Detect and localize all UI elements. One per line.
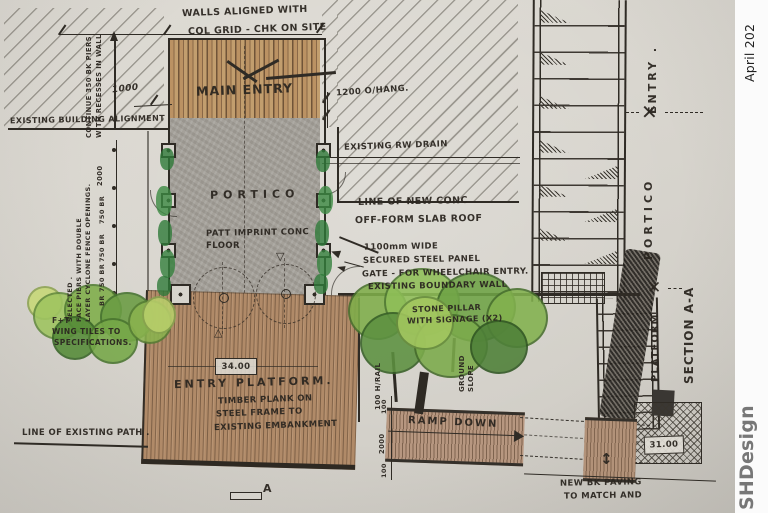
leader-arrow-head [110,31,118,41]
section-label-section-aa: SECTION A-A [682,286,696,384]
section-roof-ladder [531,0,627,302]
ground-slope-line1: GROUND [458,340,467,392]
climber-plant [314,274,328,294]
column-circle-center [281,289,291,299]
ramp-centerline [388,431,516,437]
date-stamp: April 202 [742,2,757,82]
hatch-boundary-vline [337,127,339,203]
triangle-up-icon: △ [214,326,223,339]
climber-plant [316,150,330,172]
column-centerline [284,258,285,328]
section-hatch-triangle [584,250,618,264]
climber-plant [318,186,333,214]
climber-plant [160,148,174,170]
section-cut-dash [668,288,682,289]
updown-arrow-icon: ↕ [600,450,613,468]
section-hatch-triangle [540,10,570,23]
section-hatch-triangle [539,184,569,197]
sketch-sheet: ✕ ✕ ▽ △ ↕ A 34.00 31.00 WALLS ALIGNED WI… [0,0,768,513]
climber-plant [156,186,172,216]
gate-note-line1: 1100mm WIDE [364,241,438,252]
ground-slope-label: GROUND SLOPE [458,340,476,392]
selected-piers-line1: SELECTED . [66,136,75,322]
section-cut-dash [626,112,639,113]
rw-drain-line-2 [322,163,520,164]
section-hatch-triangle [585,208,619,222]
dim-dot [112,262,116,266]
triangle-down-icon: ▽ [276,250,285,263]
pier-dim-750: 750 BR [98,226,106,262]
column-centerline [222,262,223,334]
climber-plant [158,220,172,246]
ramp-dim-2000: 2000 [378,418,386,454]
portico-label: PORTICO [210,187,300,202]
bush [142,296,176,334]
section-label-platform: PLATFORM [650,300,661,382]
selected-piers-note: SELECTED . FACE PIERS WITH DOUBLE LAYER … [66,136,93,322]
hatch-existing-building-right [337,0,518,202]
existing-path-label: LINE OF EXISTING PATH . [22,428,150,438]
section-hatch-triangle [585,165,619,179]
column-circle-center [219,293,229,303]
tree-canopy [470,320,528,374]
climber-plant [317,250,332,276]
section-marker-a: A [263,482,272,495]
ramp-level-value: 31.00 [649,439,678,450]
section-label-portico: PORTICO [642,166,655,260]
slab-note-line1: LINE OF NEW CONC [358,195,468,208]
climber-plant [315,220,329,246]
continue-piers-note: CONTINUE 350 BK PIERS WITH RECESSES IN W… [84,8,104,138]
section-hatch-triangle [539,96,569,109]
paving-note-line2: TO MATCH AND [564,490,642,501]
section-marker-bar [230,492,262,500]
platform-level-box: 34.00 [215,358,257,375]
slab-note-line2: OFF-FORM SLAB ROOF [355,213,482,226]
ramp-level-box: 31.00 [644,435,685,454]
dim-dot [112,148,116,152]
continue-piers-line1: CONTINUE 350 BK PIERS [84,8,94,138]
pier-dim-2000: 2000 [96,146,104,186]
logo-shdesign: SHDesign [736,418,758,510]
plant-note-line2: WING TILES TO [52,327,121,336]
climber-plant [160,250,175,278]
floor-note-line1: PATT IMPRINT CONC [206,227,309,239]
ramp-dim-100-bottom: 100 [380,458,388,478]
platform-level-value: 34.00 [222,362,251,372]
plant-note-line3: SPECIFICATIONS. [54,338,132,347]
paving-note-line1: NEW BK PAVING [560,477,642,488]
section-label-entry: ENTRY . [646,42,659,114]
plant-note-line1: F+T [52,316,70,325]
section-cut-dash [665,112,703,113]
dim-dot [112,186,116,190]
section-hatch-triangle [539,228,569,241]
dim-dot [112,224,116,228]
section-hatch-triangle [539,52,569,65]
climber-plant [157,276,171,296]
pier-dim-br: BR [98,290,106,306]
pier-dimension-line [116,140,117,298]
ramp-arrow-head [514,430,524,442]
selected-piers-line3: LAYER CYCLONE FENCE OPENINGS. [84,136,93,322]
floor-note-line2: FLOOR [206,241,240,251]
rw-drain-line-1 [322,157,520,158]
ramp-dim-line [391,396,392,480]
ramp-dim-100-top: 100 [380,396,388,414]
pier-dim-750: 750 BR [98,260,106,292]
pier-square-corner [170,284,191,305]
section-hatch-triangle [539,140,569,153]
continue-piers-line2: WITH RECESSES IN WALL [94,8,104,138]
selected-piers-line2: FACE PIERS WITH DOUBLE [75,136,84,322]
ground-slope-line2: SLOPE [467,340,476,392]
gate-note-line2: SECURED STEEL PANEL [363,254,480,266]
section-cut-x-icon: ✕ [647,278,662,298]
pier-dim-750: 750 BR [98,188,106,224]
fence-line [147,131,149,291]
